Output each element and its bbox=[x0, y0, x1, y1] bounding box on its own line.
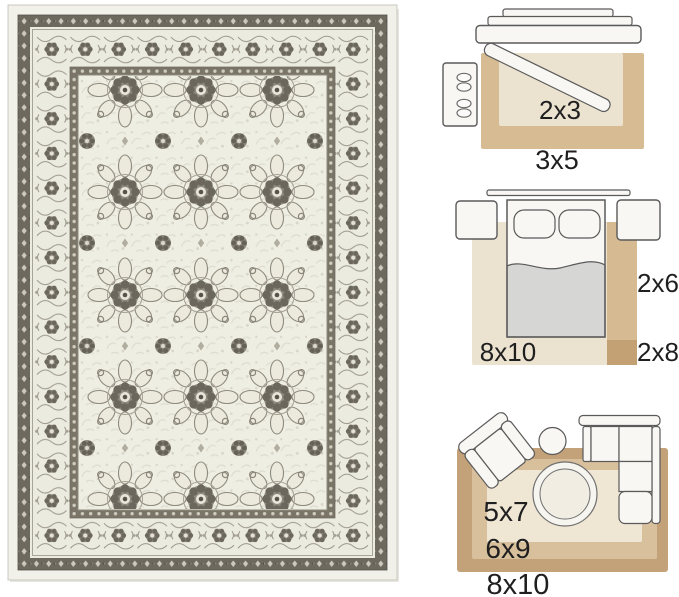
size-diagram-living-room: 5x7 6x9 8x10 bbox=[456, 410, 668, 597]
rug-size-guide-graphic: 2x3 3x5 8x10 2x6 2x8 bbox=[0, 0, 679, 597]
side-table-icon bbox=[539, 428, 566, 455]
label-6x9: 6x9 bbox=[485, 533, 530, 564]
bed-icon bbox=[507, 200, 605, 337]
door-threshold-icon bbox=[476, 9, 641, 43]
pillow-right bbox=[559, 210, 600, 238]
label-3x5: 3x5 bbox=[535, 145, 579, 175]
size-diagram-bedroom: 8x10 2x6 2x8 bbox=[456, 190, 679, 367]
nightstand-left-icon bbox=[456, 201, 497, 239]
blanket bbox=[507, 262, 605, 337]
rug-photo bbox=[8, 5, 399, 582]
label-8x10-living: 8x10 bbox=[487, 569, 550, 597]
pillow-left bbox=[514, 210, 555, 238]
label-8x10-bedroom: 8x10 bbox=[480, 337, 536, 367]
shoe-cabinet-icon bbox=[443, 63, 477, 126]
coffee-table-icon bbox=[533, 462, 597, 526]
label-5x7: 5x7 bbox=[483, 496, 528, 527]
label-2x6: 2x6 bbox=[637, 268, 679, 298]
label-2x8: 2x8 bbox=[637, 337, 679, 367]
nightstand-right-icon bbox=[617, 200, 660, 240]
size-diagram-entryway: 2x3 3x5 bbox=[443, 9, 644, 175]
headboard-icon bbox=[487, 190, 630, 196]
label-2x3: 2x3 bbox=[539, 95, 581, 125]
runner-2x8-extension bbox=[607, 340, 637, 365]
product-image: 2x3 3x5 8x10 2x6 2x8 bbox=[0, 0, 679, 597]
